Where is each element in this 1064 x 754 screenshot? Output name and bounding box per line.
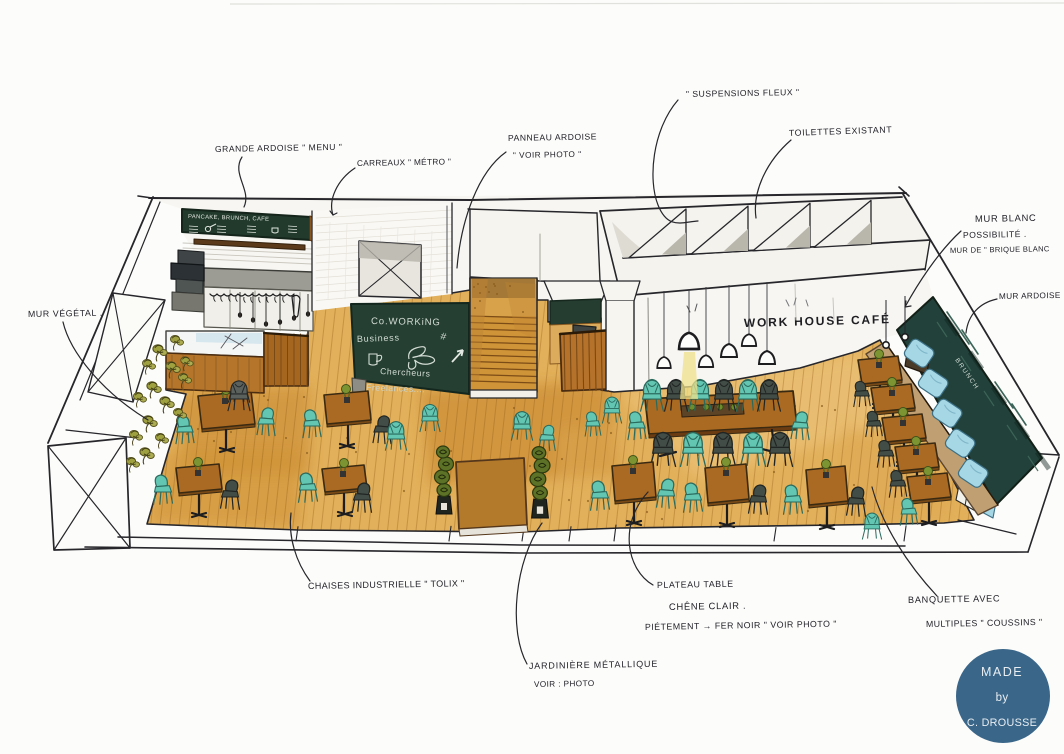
svg-text:POSSIBILITÉ .: POSSIBILITÉ . xyxy=(963,229,1027,240)
svg-text:MUR DE " BRIQUE BLANC: MUR DE " BRIQUE BLANC xyxy=(950,244,1050,255)
svg-text:BANQUETTE AVEC: BANQUETTE AVEC xyxy=(908,593,1001,605)
svg-text:Co.WORKiNG: Co.WORKiNG xyxy=(371,316,441,328)
svg-text:PANNEAU ARDOISE: PANNEAU ARDOISE xyxy=(508,131,597,143)
svg-text:MUR ARDOISE: MUR ARDOISE xyxy=(999,291,1061,301)
svg-text:CARREAUX " MÉTRO ": CARREAUX " MÉTRO " xyxy=(357,156,451,168)
svg-text:by: by xyxy=(996,692,1009,704)
svg-text:MULTIPLES " COUSSINS ": MULTIPLES " COUSSINS " xyxy=(926,617,1043,629)
svg-text:MUR VÉGÉTAL .: MUR VÉGÉTAL . xyxy=(28,308,103,319)
svg-text:" SUSPENSIONS FLEUX ": " SUSPENSIONS FLEUX " xyxy=(686,87,800,99)
svg-text:" VOIR PHOTO ": " VOIR PHOTO " xyxy=(513,150,582,160)
svg-text:C. DROUSSE: C. DROUSSE xyxy=(967,717,1037,729)
svg-text:VOIR : PHOTO: VOIR : PHOTO xyxy=(534,679,595,689)
svg-text:Business: Business xyxy=(357,333,400,344)
svg-text:CHÊNE CLAIR .: CHÊNE CLAIR . xyxy=(669,600,747,612)
svg-text:PLATEAU TABLE: PLATEAU TABLE xyxy=(657,579,734,590)
svg-text:MUR BLANC: MUR BLANC xyxy=(975,212,1037,224)
svg-text:MADE: MADE xyxy=(981,665,1023,679)
